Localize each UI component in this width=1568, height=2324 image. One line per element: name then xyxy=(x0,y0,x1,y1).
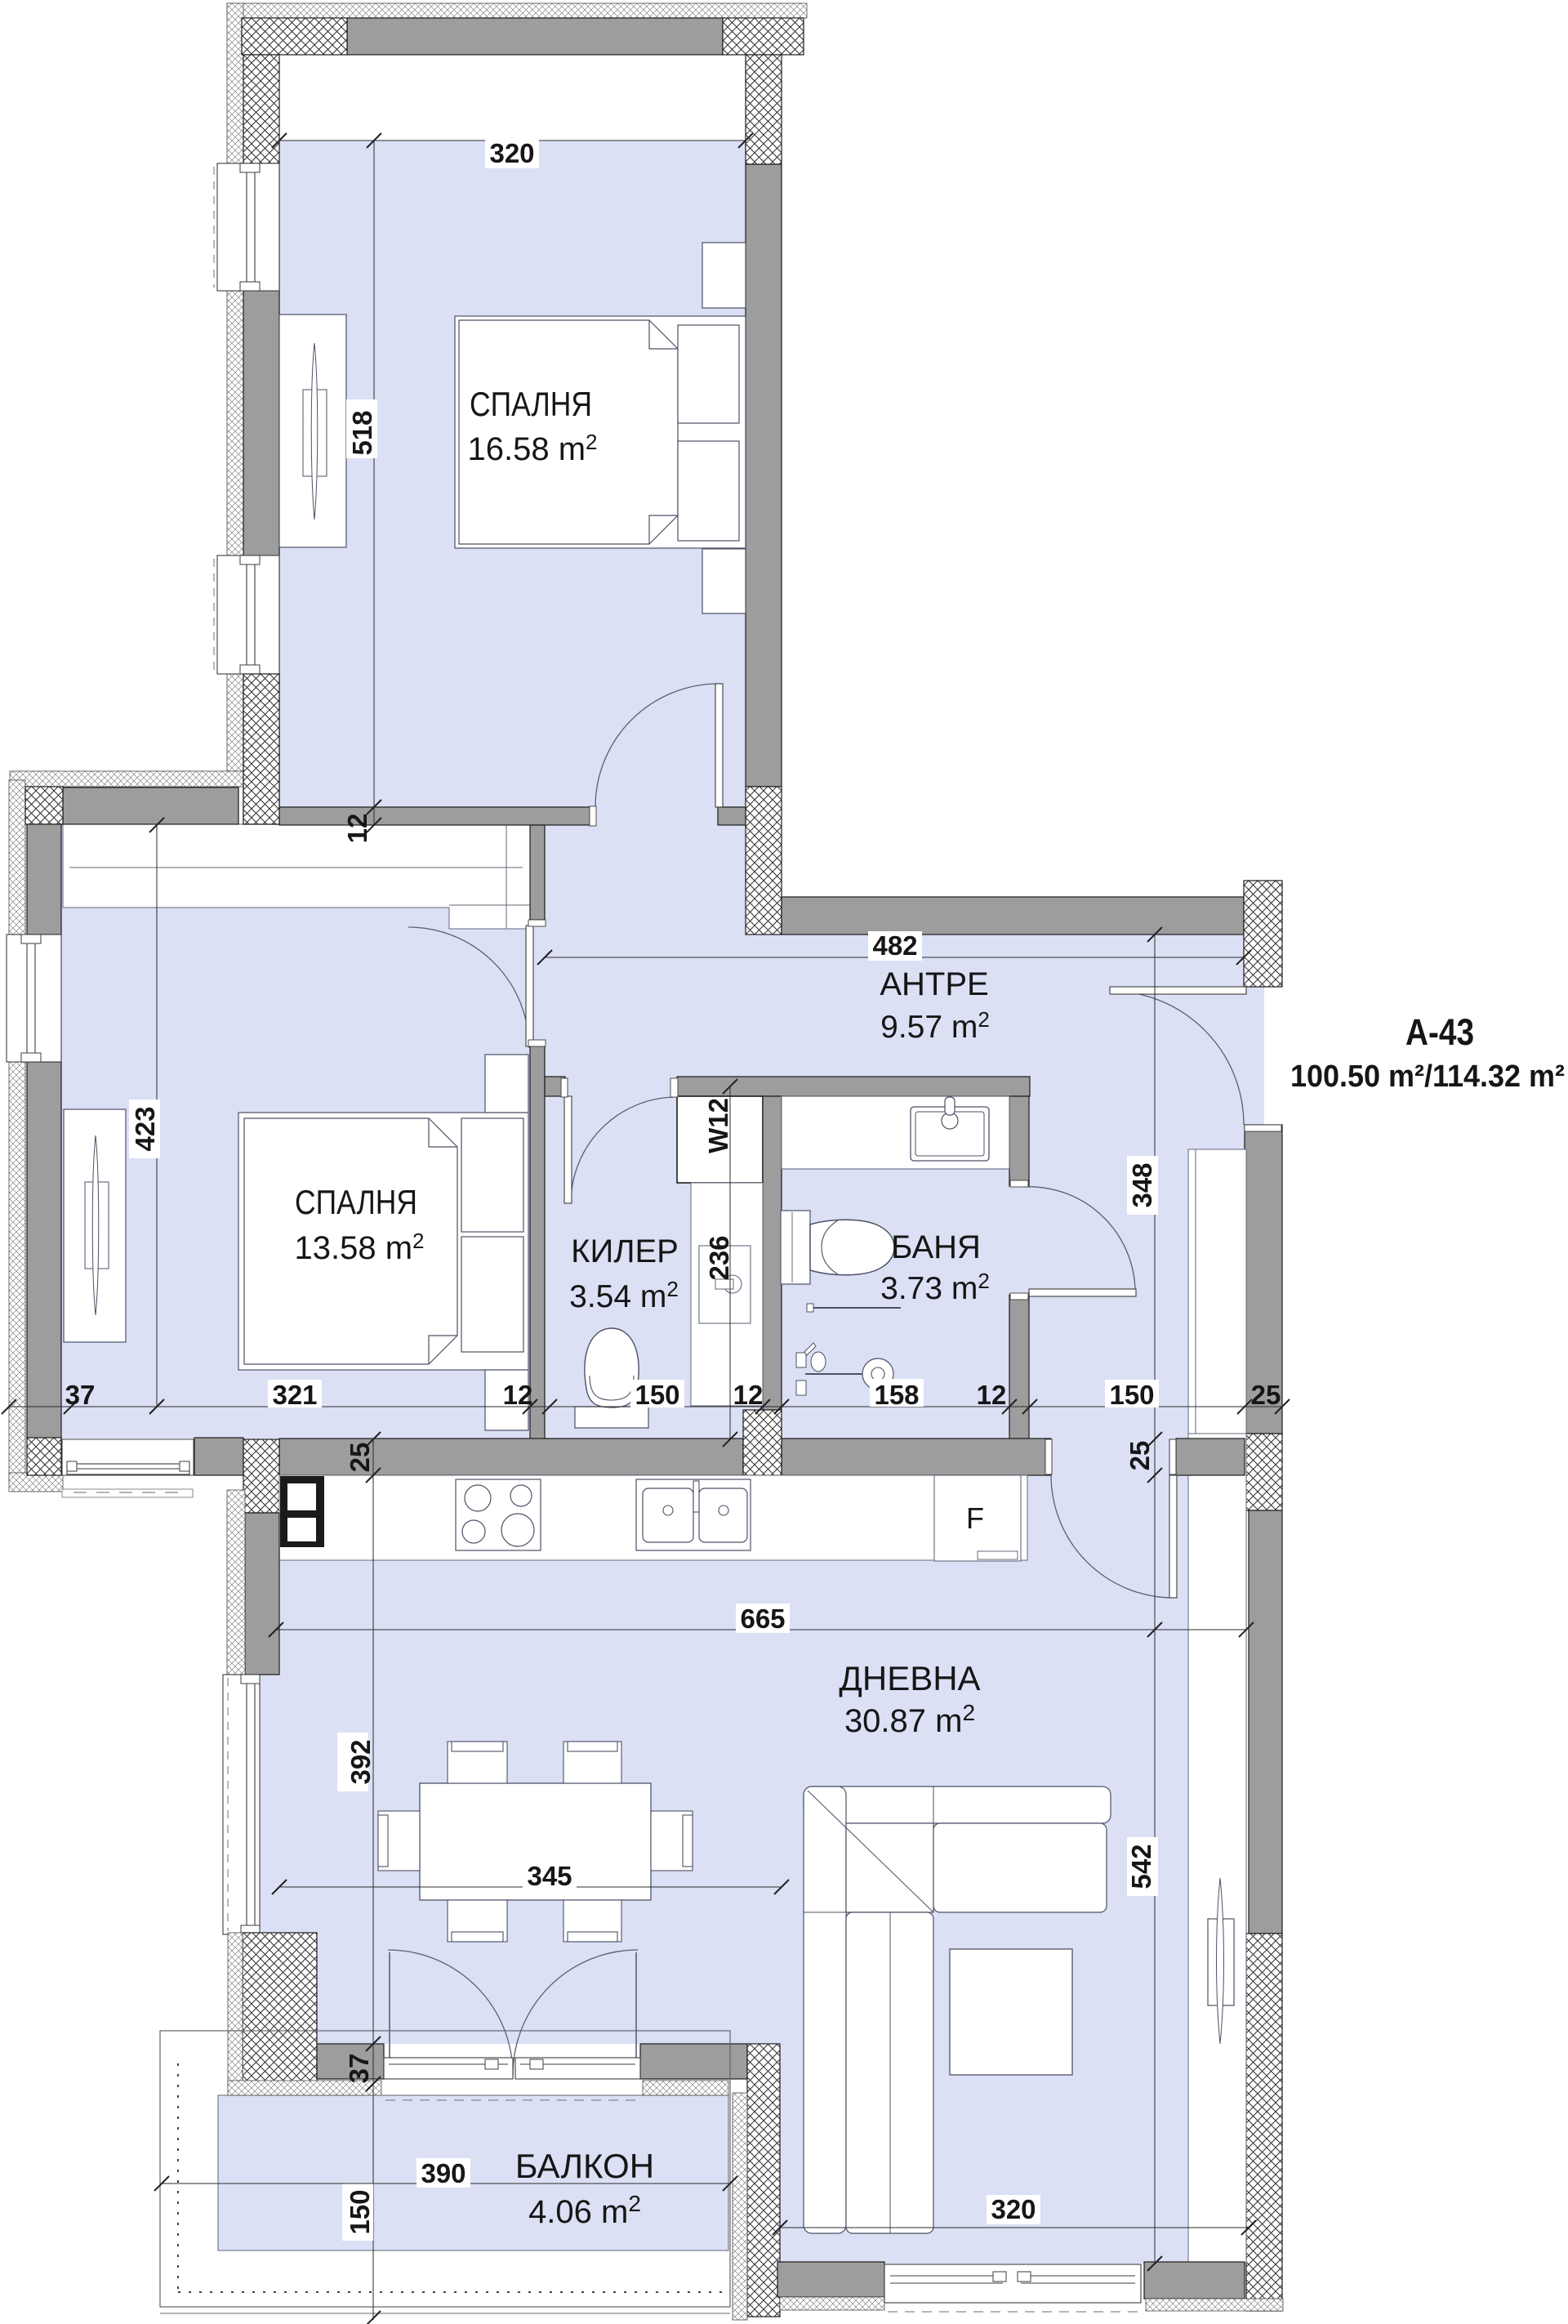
svg-text:320: 320 xyxy=(991,2194,1036,2224)
svg-text:W12: W12 xyxy=(703,1098,733,1153)
svg-text:665: 665 xyxy=(740,1604,785,1634)
svg-text:37: 37 xyxy=(65,1380,96,1410)
svg-text:F: F xyxy=(966,1501,984,1535)
svg-text:37: 37 xyxy=(344,2054,374,2084)
svg-text:9.57 m2: 9.57 m2 xyxy=(880,1007,990,1045)
svg-text:12: 12 xyxy=(977,1380,1007,1410)
svg-text:150: 150 xyxy=(345,2189,375,2234)
svg-text:158: 158 xyxy=(874,1380,919,1410)
svg-text:АНТРЕ: АНТРЕ xyxy=(880,966,988,1002)
svg-text:150: 150 xyxy=(635,1380,679,1410)
svg-text:321: 321 xyxy=(272,1380,317,1410)
svg-text:518: 518 xyxy=(347,410,377,455)
svg-text:А-43: А-43 xyxy=(1405,1011,1474,1053)
svg-text:12: 12 xyxy=(733,1380,764,1410)
svg-text:СПАЛНЯ: СПАЛНЯ xyxy=(470,385,592,423)
svg-text:348: 348 xyxy=(1127,1162,1157,1207)
svg-text:13.58 m2: 13.58 m2 xyxy=(295,1229,425,1266)
svg-text:100.50 m²/114.32 m²: 100.50 m²/114.32 m² xyxy=(1290,1059,1565,1094)
svg-text:БАНЯ: БАНЯ xyxy=(891,1229,981,1265)
svg-text:423: 423 xyxy=(130,1106,160,1151)
svg-text:3.54 m2: 3.54 m2 xyxy=(569,1277,679,1314)
svg-text:345: 345 xyxy=(527,1861,572,1891)
svg-text:392: 392 xyxy=(345,1739,376,1784)
svg-text:БАЛКОН: БАЛКОН xyxy=(515,2147,654,2185)
svg-text:482: 482 xyxy=(872,930,917,961)
svg-text:СПАЛНЯ: СПАЛНЯ xyxy=(295,1183,417,1221)
svg-text:320: 320 xyxy=(489,138,534,168)
svg-text:16.58 m2: 16.58 m2 xyxy=(468,430,598,467)
svg-text:12: 12 xyxy=(503,1380,533,1410)
svg-text:25: 25 xyxy=(1125,1441,1155,1471)
svg-text:ДНЕВНА: ДНЕВНА xyxy=(839,1659,980,1697)
svg-text:КИЛЕР: КИЛЕР xyxy=(571,1233,679,1269)
svg-text:25: 25 xyxy=(1251,1380,1281,1410)
svg-text:3.73 m2: 3.73 m2 xyxy=(880,1269,990,1306)
svg-text:30.87 m2: 30.87 m2 xyxy=(844,1700,975,1739)
svg-text:150: 150 xyxy=(1109,1380,1154,1410)
svg-text:4.06 m2: 4.06 m2 xyxy=(528,2191,641,2230)
svg-text:12: 12 xyxy=(342,814,372,844)
svg-text:542: 542 xyxy=(1126,1844,1156,1889)
svg-text:25: 25 xyxy=(345,1443,375,1473)
svg-text:236: 236 xyxy=(704,1235,734,1280)
svg-text:390: 390 xyxy=(421,2158,465,2188)
